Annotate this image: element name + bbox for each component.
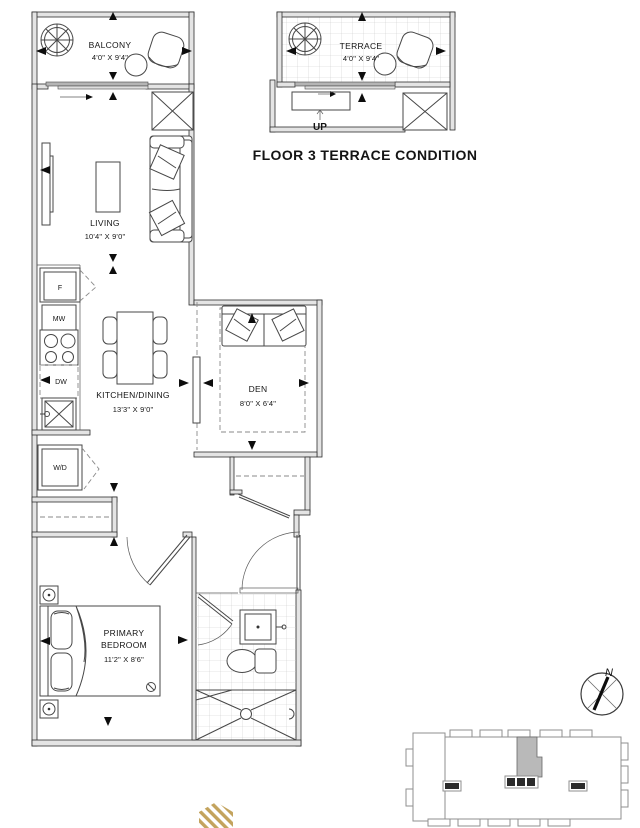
living-label: LIVING xyxy=(90,218,120,228)
shaft-box xyxy=(403,93,447,130)
kitchen-dining-dimensions: 13'3" X 9'0" xyxy=(113,405,154,414)
bedroom-label-line1: PRIMARY xyxy=(104,628,145,638)
den-dimensions: 8'0" X 6'4" xyxy=(240,399,276,408)
building-key-plan xyxy=(406,730,628,826)
terrace-label: TERRACE xyxy=(340,41,383,51)
kitchen-sink xyxy=(40,398,76,430)
balcony-sliding-door xyxy=(46,82,148,100)
bedroom-label-line2: BEDROOM xyxy=(101,640,147,650)
lounge-chair-icon xyxy=(146,30,186,71)
den-label: DEN xyxy=(249,384,268,394)
den-room: DEN 8'0" X 6'4" xyxy=(193,302,306,450)
microwave: MW xyxy=(42,305,76,330)
terrace-detail: TERRACE 4'0" X 9'4" UP FLOOR 3 TERRACE C… xyxy=(253,12,478,163)
terrace-dimensions: 4'0" X 9'4" xyxy=(343,54,379,63)
bedroom-dimensions: 11'2" X 8'6" xyxy=(104,655,144,664)
bed-icon xyxy=(40,606,160,696)
balcony-dimensions: 4'0" X 9'4" xyxy=(92,53,128,62)
dishwasher-label: DW xyxy=(55,379,67,386)
column-symbol xyxy=(40,700,58,718)
fridge: F xyxy=(40,268,96,302)
bedroom-door xyxy=(127,535,190,585)
den-sofa-icon xyxy=(222,306,306,346)
den-sliding-panel xyxy=(193,357,200,423)
cooktop xyxy=(40,330,78,365)
kitchen-dining-room: F MW DW xyxy=(37,265,170,430)
entry-closet-door xyxy=(238,494,290,518)
kitchen-dining-label: KITCHEN/DINING xyxy=(96,390,170,400)
entry-door xyxy=(240,532,300,593)
floor-plan-page: BALCONY 4'0" X 9'4" xyxy=(0,0,640,828)
microwave-label: MW xyxy=(53,316,66,323)
floor-plan-canvas: BALCONY 4'0" X 9'4" xyxy=(0,0,640,828)
sofa-icon xyxy=(149,136,192,242)
washer-dryer-closet: W/D xyxy=(38,445,99,490)
balcony-label: BALCONY xyxy=(89,40,132,50)
elevator-core xyxy=(505,776,538,788)
side-table-icon xyxy=(125,54,147,76)
north-compass: N xyxy=(581,667,623,715)
living-dimensions: 10'4" X 9'0" xyxy=(85,232,126,241)
coffee-table-icon xyxy=(96,162,120,212)
stair-core xyxy=(569,781,587,791)
fridge-label: F xyxy=(58,285,62,292)
balcony-room: BALCONY 4'0" X 9'4" xyxy=(32,12,194,100)
bathroom xyxy=(196,593,296,740)
north-label: N xyxy=(605,667,613,679)
terrace-condition-title: FLOOR 3 TERRACE CONDITION xyxy=(253,147,478,163)
washer-dryer-label: W/D xyxy=(53,465,67,472)
terrace-sliding-door xyxy=(295,82,395,97)
tv-unit-icon xyxy=(42,143,53,225)
shaft-box xyxy=(152,92,193,130)
living-room: LIVING 10'4" X 9'0" xyxy=(42,92,193,242)
up-label: UP xyxy=(313,122,327,133)
main-unit-plan: BALCONY 4'0" X 9'4" xyxy=(32,12,322,746)
primary-bedroom-room: PRIMARY BEDROOM 11'2" X 8'6" xyxy=(40,586,160,718)
dining-table-icon xyxy=(103,312,167,384)
column-symbol xyxy=(40,586,58,604)
stair-core xyxy=(443,781,461,791)
brand-logo xyxy=(199,802,233,828)
toilet xyxy=(227,649,276,673)
